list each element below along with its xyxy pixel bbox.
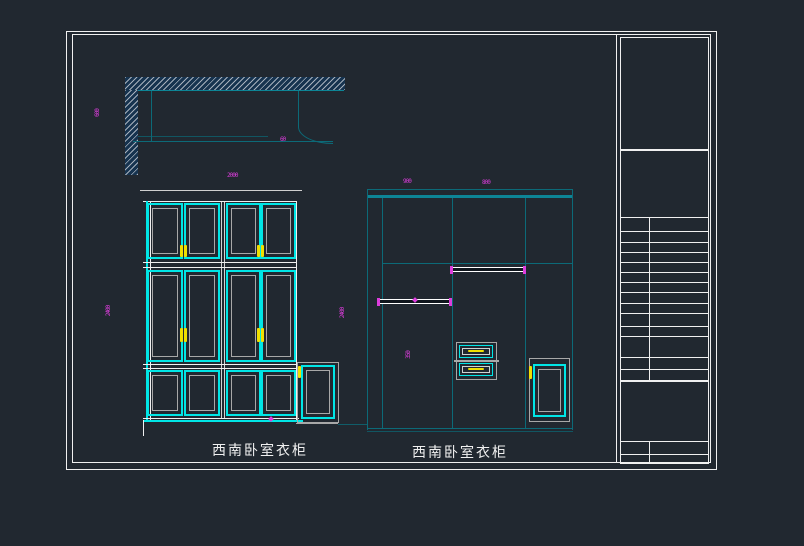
door-panel (152, 208, 178, 254)
titleblock-cell (621, 283, 650, 292)
door-handle[interactable] (257, 328, 260, 342)
titleblock-cell (621, 232, 650, 242)
right-cabinet-door[interactable] (533, 364, 566, 417)
dimension-text: 900 (403, 179, 411, 185)
interior-partition (382, 198, 383, 428)
wardrobe-door[interactable] (226, 203, 261, 259)
door-handle[interactable] (180, 328, 183, 342)
titleblock-cell (621, 218, 650, 231)
rail-end-cap (450, 266, 453, 274)
door-panel (189, 275, 215, 357)
titleblock-row (621, 358, 708, 370)
plan-depth-line (138, 136, 268, 137)
wardrobe-door[interactable] (147, 270, 183, 362)
drawer[interactable] (459, 363, 493, 376)
titleblock-divider (616, 34, 617, 463)
dimension-text: 600 (95, 109, 101, 117)
wardrobe-door[interactable] (261, 203, 296, 259)
plan-right-edge (298, 91, 299, 127)
door-panel (306, 370, 330, 414)
door-panel (266, 375, 291, 411)
titleblock-notes-box (620, 381, 709, 442)
titleblock-cell (621, 442, 650, 454)
dimension-text: 2400 (340, 308, 346, 318)
wardrobe-door[interactable] (226, 370, 261, 416)
titleblock-cell (621, 314, 650, 326)
interior-partition (525, 198, 526, 428)
drawer[interactable] (459, 345, 493, 358)
titleblock-row (621, 273, 708, 283)
titleblock-cell (621, 243, 650, 252)
view-title-right: 西南卧室衣柜 (412, 442, 508, 462)
door-panel (538, 369, 561, 412)
shelf-line (382, 263, 572, 264)
cad-canvas[interactable]: 600 60 2000 2400 2400 (0, 0, 804, 546)
titleblock-logo-box (620, 37, 709, 150)
right-elevation-left-edge (367, 189, 368, 430)
titleblock-row (621, 243, 708, 253)
dimension-text: 800 (482, 180, 490, 186)
hanging-rail (452, 267, 525, 272)
titleblock-cell (621, 293, 650, 303)
door-panel (266, 275, 291, 357)
titleblock-cell (621, 358, 650, 369)
left-elevation-rail-line (143, 267, 297, 268)
titleblock-row (621, 304, 708, 314)
titleblock-row (621, 314, 708, 327)
titleblock-cell (621, 455, 650, 463)
rail-end-cap (377, 298, 380, 306)
door-handle[interactable] (184, 245, 187, 257)
side-cabinet-door[interactable] (301, 365, 335, 419)
left-elevation-top-line (140, 190, 302, 191)
drawer-handle[interactable] (468, 368, 484, 370)
dimension-text: 2400 (106, 306, 112, 316)
plan-wall-hatch-top (125, 77, 345, 90)
titleblock-row (621, 293, 708, 304)
wardrobe-door[interactable] (147, 203, 183, 259)
baseline-fragment (338, 424, 368, 425)
interior-partition (452, 198, 453, 428)
side-cabinet-base (296, 423, 338, 424)
door-handle[interactable] (261, 245, 264, 257)
view-title-left: 西南卧室衣柜 (212, 440, 308, 460)
door-handle[interactable] (257, 245, 260, 257)
titleblock-row (621, 283, 708, 293)
titleblock-row (621, 370, 708, 381)
right-elevation-top-band (367, 195, 573, 198)
plan-front-edge (133, 141, 333, 142)
plan-top-edge (138, 90, 344, 91)
wardrobe-door[interactable] (184, 203, 220, 259)
left-elevation-base-line (143, 418, 299, 419)
right-elevation-base-line2 (367, 431, 573, 432)
door-handle[interactable] (261, 328, 264, 342)
left-elevation-center-divider (224, 201, 225, 418)
rail-end-cap (449, 298, 452, 306)
titleblock-cell (621, 263, 650, 272)
titleblock-cell (621, 327, 650, 336)
door-panel (231, 275, 256, 357)
titleblock-row (621, 337, 708, 358)
drawer-handle[interactable] (468, 350, 484, 352)
left-elevation-rail-line (143, 368, 297, 369)
titleblock-cell (621, 253, 650, 262)
left-elevation-rail-line (143, 364, 297, 365)
right-elevation-base-line (367, 428, 573, 429)
left-elevation-base-tick (143, 420, 144, 436)
titleblock-cell (621, 273, 650, 282)
left-elevation-cap-line (143, 201, 297, 202)
wardrobe-door[interactable] (184, 270, 220, 362)
wardrobe-door[interactable] (226, 270, 261, 362)
wardrobe-door[interactable] (261, 370, 296, 416)
left-elevation-center-divider (221, 201, 222, 418)
door-handle[interactable] (529, 366, 532, 379)
right-elevation-top-line (367, 189, 573, 190)
titleblock-row (621, 232, 708, 243)
titleblock-row (621, 442, 708, 455)
titleblock-info-box (620, 150, 709, 218)
titleblock-row (621, 263, 708, 273)
door-handle[interactable] (298, 366, 301, 378)
door-panel (189, 208, 215, 254)
door-panel (231, 208, 256, 254)
door-panel (231, 375, 256, 411)
door-panel (152, 275, 178, 357)
titleblock-cell (621, 337, 650, 357)
wardrobe-door[interactable] (184, 370, 220, 416)
dimension-text: 350 (406, 351, 412, 359)
wardrobe-door[interactable] (261, 270, 296, 362)
door-panel (266, 208, 291, 254)
left-elevation-base-cyan (143, 420, 303, 422)
drawer-divider (454, 360, 499, 362)
dimension-text: 60 (280, 137, 285, 143)
titleblock-table (620, 218, 709, 381)
right-elevation-right-edge (572, 189, 573, 430)
door-handle[interactable] (184, 328, 187, 342)
titleblock-cell (621, 370, 650, 380)
door-panel (189, 375, 215, 411)
plan-left-edge (151, 91, 152, 141)
titleblock-row (621, 218, 708, 232)
door-handle[interactable] (180, 245, 183, 257)
titleblock-row (621, 253, 708, 263)
wardrobe-door[interactable] (147, 370, 183, 416)
plan-wall-hatch-left (125, 90, 138, 175)
titleblock-cell (621, 304, 650, 313)
dimension-text: 2000 (227, 173, 237, 179)
titleblock-row (621, 327, 708, 337)
titleblock-row (621, 455, 708, 464)
left-elevation-rail-line (143, 262, 297, 263)
rail-end-cap (523, 266, 526, 274)
titleblock-footer (620, 442, 709, 464)
door-panel (152, 375, 178, 411)
